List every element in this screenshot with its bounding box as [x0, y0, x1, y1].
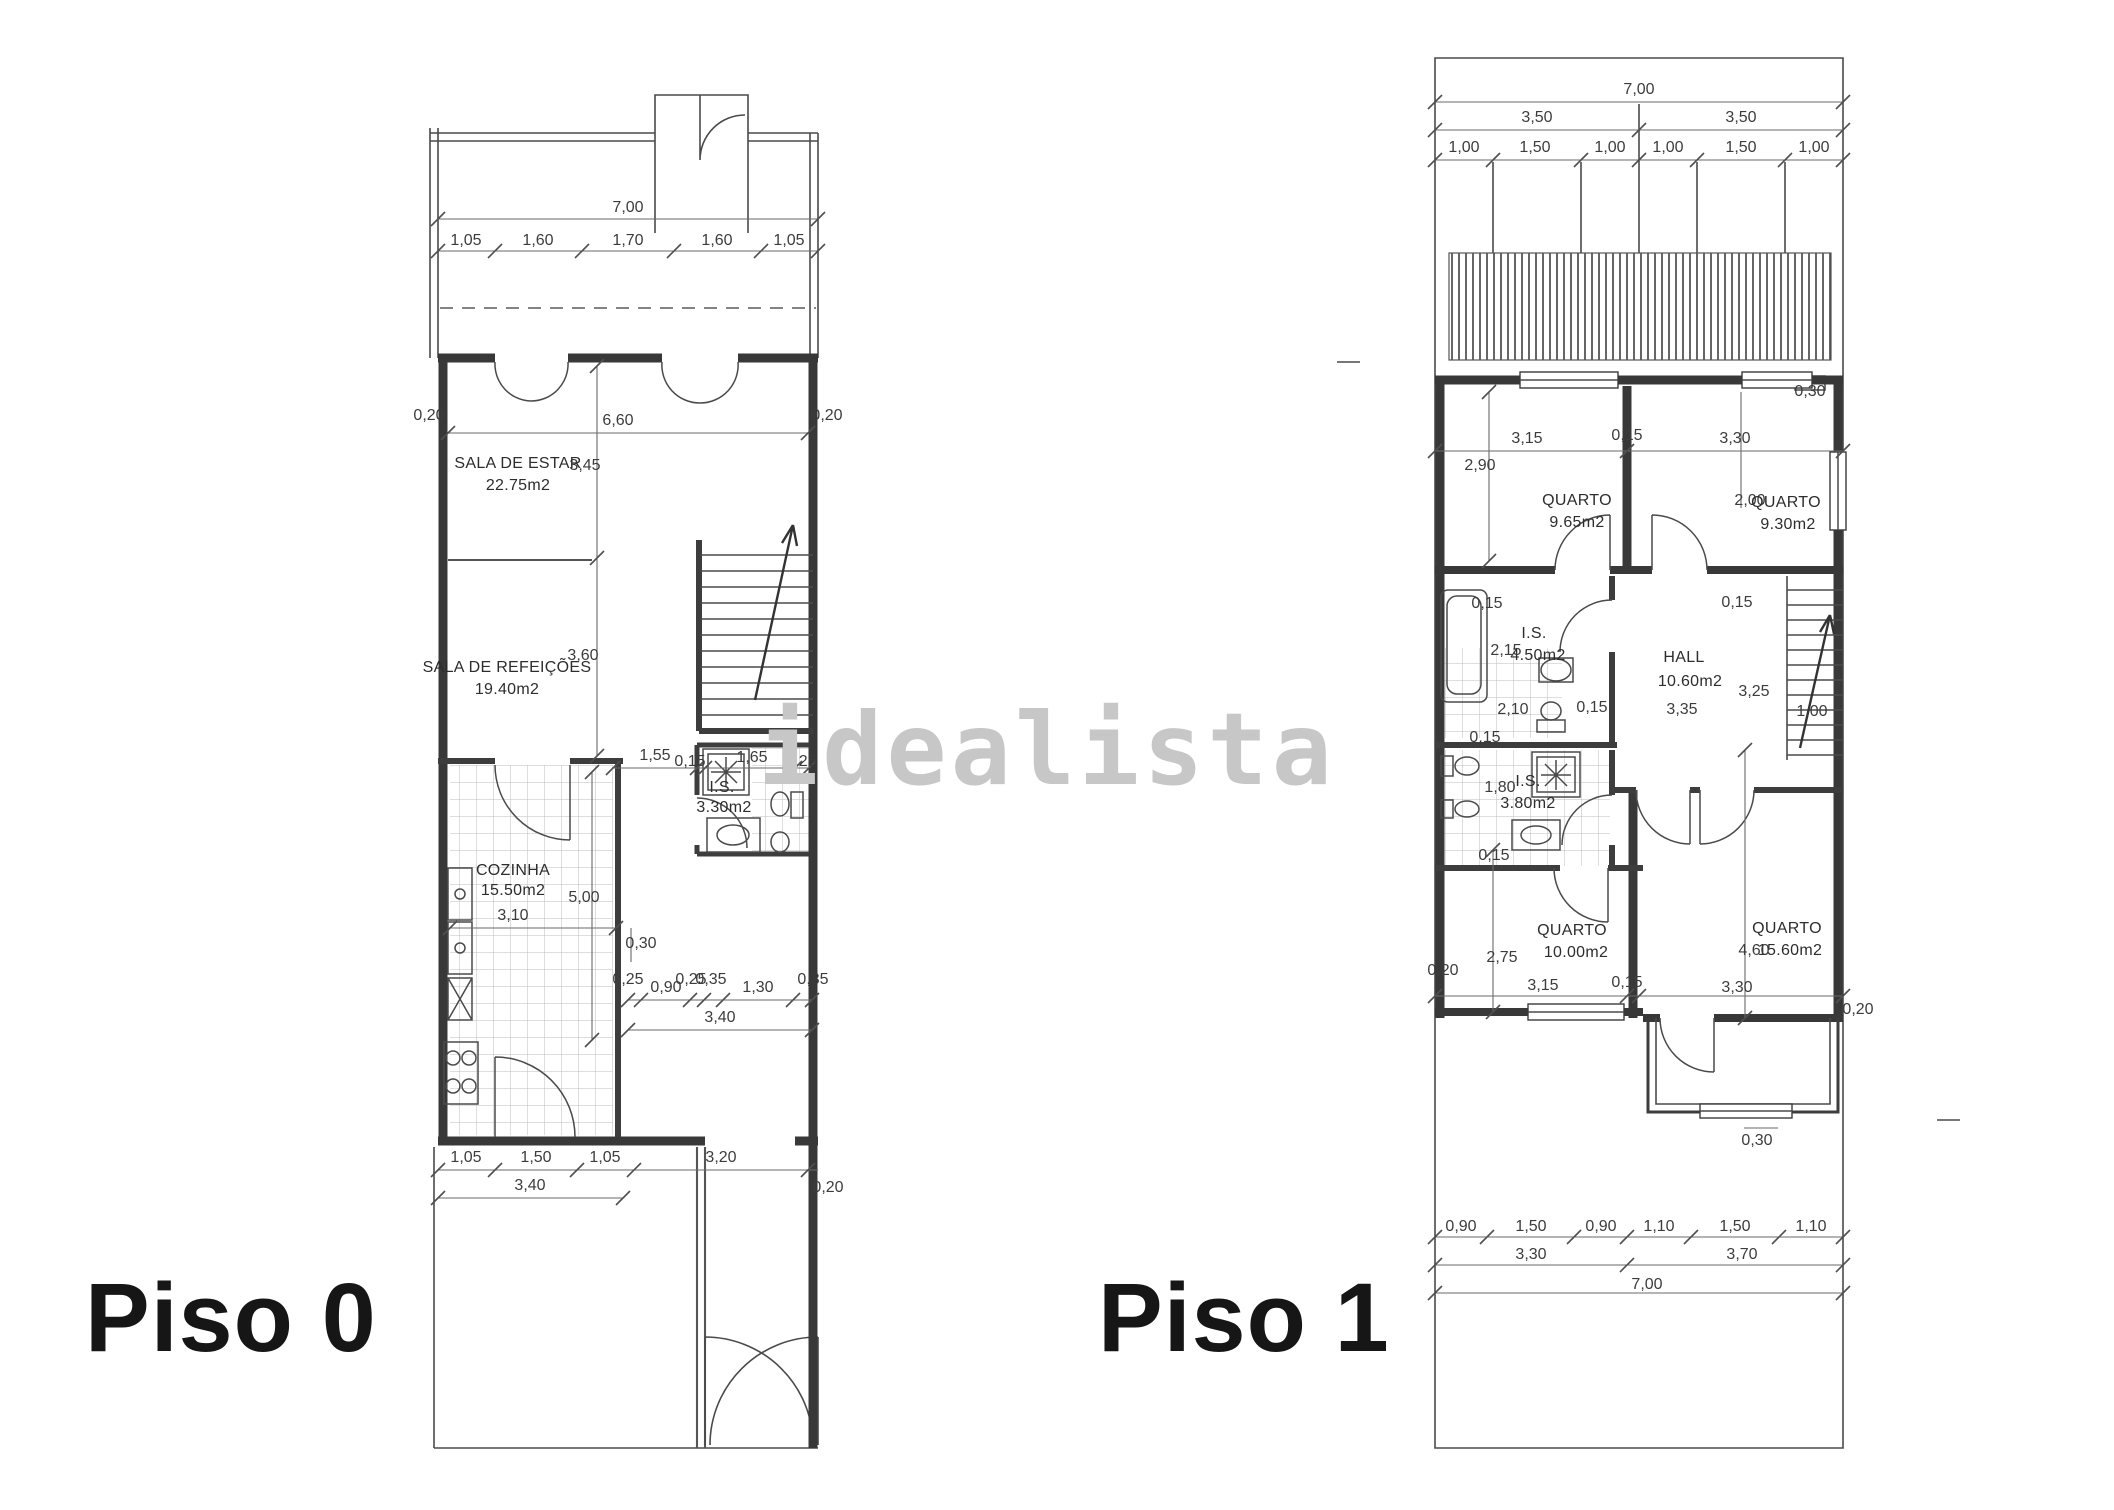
dimension-label: 5,00 — [568, 889, 599, 906]
dimension-label: 1,60 — [522, 232, 553, 249]
dimension-label: 1,60 — [701, 232, 732, 249]
dimension-label: 7,00 — [1631, 1276, 1662, 1293]
floor-label-piso1: Piso 1 — [1098, 1262, 1390, 1374]
dimension-label: 0,25 — [612, 971, 643, 988]
dimension-label: 3,25 — [1738, 683, 1769, 700]
stairs — [700, 525, 813, 715]
room-label: 22.75m2 — [486, 477, 550, 494]
dimension-label: 3,50 — [1521, 109, 1552, 126]
room-label: QUARTO — [1542, 492, 1612, 509]
dimension-label: 3,60 — [567, 647, 598, 664]
room-label: SALA DE ESTAR — [454, 455, 581, 472]
dimension-label: 6,60 — [602, 412, 633, 429]
room-label: SALA DE REFEIÇÕES — [423, 656, 592, 676]
dimension-label: 0,15 — [1721, 594, 1752, 611]
dimension-label: 0,30 — [1741, 1132, 1772, 1149]
room-label: 3.30m2 — [696, 799, 751, 816]
dimension-label: 0,20 — [1427, 962, 1458, 979]
room-label: QUARTO — [1752, 920, 1822, 937]
dimension-label: 1,50 — [1719, 1218, 1750, 1235]
dimension-label: 3,40 — [704, 1009, 735, 1026]
dimension-label: 3,40 — [514, 1177, 545, 1194]
room-label: 9.65m2 — [1549, 514, 1604, 531]
idealista-watermark: idealista — [758, 700, 1336, 800]
dimension-label: 1,50 — [1519, 139, 1550, 156]
dimension-label: 0,90 — [1445, 1218, 1476, 1235]
dimension-label: 1,55 — [639, 747, 670, 764]
floor-label-piso0: Piso 0 — [85, 1262, 377, 1374]
dimension-label: 0,15 — [674, 753, 705, 770]
dimension-label: 1,10 — [1795, 1218, 1826, 1235]
dimension-label: 0,15 — [1471, 595, 1502, 612]
roof-deck — [1449, 253, 1831, 390]
room-label: 10.60m2 — [1658, 673, 1722, 690]
dimension-label: 2,90 — [1464, 457, 1495, 474]
dimension-label: 0,15 — [1576, 699, 1607, 716]
dimension-label: 0,20 — [811, 407, 842, 424]
dimension-label: 3,15 — [1527, 977, 1558, 994]
room-label: I.S. — [1521, 625, 1546, 642]
dimension-label: 2,75 — [1486, 949, 1517, 966]
dimension-label: 0,90 — [1585, 1218, 1616, 1235]
dimension-label: 0,15 — [1611, 974, 1642, 991]
dimension-label: 0,35 — [797, 971, 828, 988]
dimension-label: 0,15 — [1611, 427, 1642, 444]
dimension-label: 3,10 — [497, 907, 528, 924]
room-label: COZINHA — [476, 862, 550, 879]
dimension-label: 3,20 — [705, 1149, 736, 1166]
dimension-label: 1,00 — [1796, 703, 1827, 720]
dimension-label: 0,15 — [1469, 729, 1500, 746]
dimension-label: 1,50 — [520, 1149, 551, 1166]
dimension-label: 1,05 — [773, 232, 804, 249]
room-label: QUARTO — [1751, 494, 1821, 511]
dimension-label: 3,70 — [1726, 1246, 1757, 1263]
room-label: 9.30m2 — [1760, 516, 1815, 533]
dimension-label: 1,05 — [450, 1149, 481, 1166]
dimension-label: 3,30 — [1719, 430, 1750, 447]
dimension-label: 1,50 — [1725, 139, 1756, 156]
dimension-label: 1,30 — [742, 979, 773, 996]
dimension-label: 1,00 — [1594, 139, 1625, 156]
dimension-label: 1,70 — [612, 232, 643, 249]
dimension-label: 3,50 — [1725, 109, 1756, 126]
dimension-label: 3,15 — [1511, 430, 1542, 447]
floorplan-sheet: 7,001,051,601,701,601,050,206,600,203,45… — [0, 0, 2114, 1510]
room-label: 3.80m2 — [1500, 795, 1555, 812]
walls — [1435, 380, 1843, 1112]
dimension-label: 1,05 — [589, 1149, 620, 1166]
dimension-label: 0,30 — [625, 935, 656, 952]
dimension-label: 0,20 — [413, 407, 444, 424]
room-label: QUARTO — [1537, 922, 1607, 939]
room-label: HALL — [1663, 649, 1704, 666]
dimension-label: 1,10 — [1643, 1218, 1674, 1235]
floor-plan-piso1: 7,003,503,501,001,501,001,001,501,000,30… — [1330, 45, 1970, 1465]
dimension-label: 1,00 — [1798, 139, 1829, 156]
dimension-label: 4,60 — [1738, 942, 1769, 959]
dimension-label: 1,00 — [1652, 139, 1683, 156]
dimension-label: 1,50 — [1515, 1218, 1546, 1235]
dimension-label: 7,00 — [1623, 81, 1654, 98]
dimension-label: 0,30 — [1794, 383, 1825, 400]
dimension-label: 7,00 — [612, 199, 643, 216]
dimension-label: 0,35 — [695, 971, 726, 988]
room-label: I.S. — [1515, 773, 1540, 790]
dimension-label: 0,20 — [1842, 1001, 1873, 1018]
room-label: 19.40m2 — [475, 681, 539, 698]
dimension-label: 1,00 — [1448, 139, 1479, 156]
dimension-label: 1,05 — [450, 232, 481, 249]
room-label: 15.50m2 — [481, 882, 545, 899]
dimension-label: 2,10 — [1497, 701, 1528, 718]
dimension-label: 1,80 — [1484, 779, 1515, 796]
dimension-label: 0,15 — [1478, 847, 1509, 864]
room-label: I.S. — [709, 779, 734, 796]
dimension-label: 3,30 — [1515, 1246, 1546, 1263]
dimension-label: 0,20 — [812, 1179, 843, 1196]
dimension-label: 2,15 — [1490, 642, 1521, 659]
dimension-label: 3,35 — [1666, 701, 1697, 718]
room-label: 10.00m2 — [1544, 944, 1608, 961]
dimension-label: 3,30 — [1721, 979, 1752, 996]
